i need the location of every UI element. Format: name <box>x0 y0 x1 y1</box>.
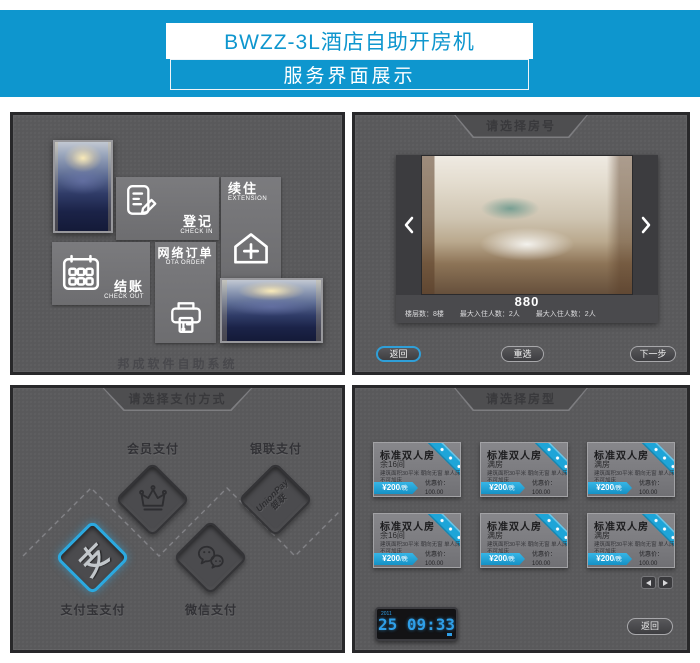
check-in-label: 登记 <box>180 215 213 229</box>
extension-tile[interactable]: 续住 EXTENSION <box>221 177 281 278</box>
room-number-header-tab: 请选择房号 <box>454 115 588 138</box>
room-capacity-detail-2: 最大入住人数：2人 <box>536 309 596 319</box>
system-footer-text: 邦成软件自助系统 <box>13 355 342 372</box>
alipay-label: 支付宝支付 <box>33 601 153 618</box>
clock-indicator <box>447 633 452 636</box>
price-ribbon: ¥200/晚 <box>587 482 632 494</box>
ota-order-sublabel: OTA ORDER <box>155 260 216 266</box>
discount-price: 优惠价：100.00 <box>425 551 460 568</box>
price-ribbon: ¥200/晚 <box>373 553 418 565</box>
room-card[interactable]: 标准双人房 满房 建筑面积30平米 朝向无窗 单人床1.2米 不可加床 ¥200… <box>480 442 568 497</box>
pager-next-button[interactable] <box>658 576 673 589</box>
hotel-lobby-photo-portrait <box>53 140 113 233</box>
discount-price: 优惠价：100.00 <box>425 480 460 497</box>
ota-order-tile[interactable]: 网络订单 OTA ORDER <box>155 242 216 343</box>
room-type-header: 请选择房型 <box>486 390 556 407</box>
check-in-sublabel: CHECK IN <box>180 229 213 235</box>
discount-price: 优惠价：100.00 <box>532 551 567 568</box>
chevron-right-icon <box>641 216 651 234</box>
unionpay-label: 银联支付 <box>216 440 336 457</box>
room-card[interactable]: 标准双人房 余16间 建筑面积30平米 朝向无窗 单人床1.2米 不可加床 ¥2… <box>373 513 461 568</box>
check-out-label: 结账 <box>104 280 144 294</box>
price-ribbon: ¥200/晚 <box>373 482 418 494</box>
room-card[interactable]: 标准双人房 满房 建筑面积30平米 朝向无窗 单人床1.2米 不可加床 ¥200… <box>587 442 675 497</box>
payment-method-screen: 请选择支付方式 会员支付 银联支付 支付宝支付 微信支付 UnionPay 银联 <box>10 385 345 653</box>
discount-price: 优惠价：100.00 <box>639 551 674 568</box>
room-number-screen: 请选择房号 880 楼层数：8楼 最大入住人数：2人 最大入住人数：2人 <box>352 112 690 375</box>
price-ribbon: ¥200/晚 <box>480 482 525 494</box>
price-ribbon: ¥200/晚 <box>480 553 525 565</box>
discount-price: 优惠价：100.00 <box>532 480 567 497</box>
clock-time: 09:33 <box>407 615 455 634</box>
check-out-tile[interactable]: 结账 CHECK OUT <box>52 242 150 305</box>
room-type-header-tab: 请选择房型 <box>454 388 588 411</box>
room-photo-carousel: 880 楼层数：8楼 最大入住人数：2人 最大入住人数：2人 <box>396 155 658 323</box>
register-icon <box>124 183 160 219</box>
room-photo <box>421 155 633 295</box>
member-pay-label: 会员支付 <box>93 440 213 457</box>
section-title: 服务界面展示 <box>283 61 415 88</box>
room-card-grid: 标准双人房 余16间 建筑面积30平米 朝向无窗 单人床1.2米 不可加床 ¥2… <box>373 442 675 570</box>
room-capacity-detail: 最大入住人数：2人 <box>460 309 520 319</box>
wechat-pay-label: 微信支付 <box>151 601 271 618</box>
check-out-sublabel: CHECK OUT <box>104 294 144 300</box>
price-ribbon: ¥200/晚 <box>587 553 632 565</box>
alipay-icon: 支 <box>69 530 115 584</box>
room-type-back-button[interactable]: 返回 <box>627 618 673 635</box>
crown-icon <box>128 475 177 524</box>
room-card[interactable]: 标准双人房 满房 建筑面积30平米 朝向无窗 单人床1.2米 不可加床 ¥200… <box>587 513 675 568</box>
room-card[interactable]: 标准双人房 满房 建筑面积30平米 朝向无窗 单人床1.2米 不可加床 ¥200… <box>480 513 568 568</box>
room-info-bar: 880 楼层数：8楼 最大入住人数：2人 最大入住人数：2人 <box>396 295 658 323</box>
back-button[interactable]: 返回 <box>376 346 421 362</box>
main-menu-screen: 登记 CHECK IN 续住 EXTENSION <box>10 112 345 375</box>
carousel-next-button[interactable] <box>633 155 658 295</box>
screenshot-root: BWZZ-3L酒店自助开房机 服务界面展示 登记 CHECK IN 续住 <box>0 0 700 663</box>
room-floor-detail: 楼层数：8楼 <box>405 309 444 319</box>
unionpay-icon: UnionPay 银联 <box>254 478 296 520</box>
extension-label: 续住 <box>228 182 267 196</box>
extension-sublabel: EXTENSION <box>228 196 267 202</box>
next-step-button[interactable]: 下一步 <box>630 346 676 362</box>
printer-icon <box>167 298 205 336</box>
house-plus-icon <box>231 230 271 270</box>
room-card[interactable]: 标准双人房 余16间 建筑面积30平米 朝向无窗 单人床1.2米 不可加床 ¥2… <box>373 442 461 497</box>
carousel-prev-button[interactable] <box>396 155 421 295</box>
calendar-icon <box>60 253 102 295</box>
discount-price: 优惠价：100.00 <box>639 480 674 497</box>
section-title-box: 服务界面展示 <box>170 59 529 90</box>
clock-day: 25 <box>378 615 397 634</box>
room-number-value: 880 <box>396 295 658 309</box>
reselect-button[interactable]: 重选 <box>501 346 544 362</box>
arrow-left-icon <box>646 580 651 586</box>
chevron-left-icon <box>404 216 414 234</box>
wechat-icon <box>186 533 235 582</box>
check-in-tile[interactable]: 登记 CHECK IN <box>116 177 219 240</box>
product-title-box: BWZZ-3L酒店自助开房机 <box>166 23 533 59</box>
pager-prev-button[interactable] <box>641 576 656 589</box>
ota-order-label: 网络订单 <box>155 247 216 260</box>
digital-clock: 2011 25 09:33 <box>375 607 458 641</box>
hotel-lobby-photo-landscape <box>220 278 323 343</box>
room-type-screen: 请选择房型 标准双人房 余16间 建筑面积30平米 朝向无窗 单人床1.2米 不… <box>352 385 690 653</box>
arrow-right-icon <box>663 580 668 586</box>
header-banner: BWZZ-3L酒店自助开房机 服务界面展示 <box>0 10 700 97</box>
room-number-header: 请选择房号 <box>486 117 556 134</box>
product-title: BWZZ-3L酒店自助开房机 <box>224 26 475 56</box>
